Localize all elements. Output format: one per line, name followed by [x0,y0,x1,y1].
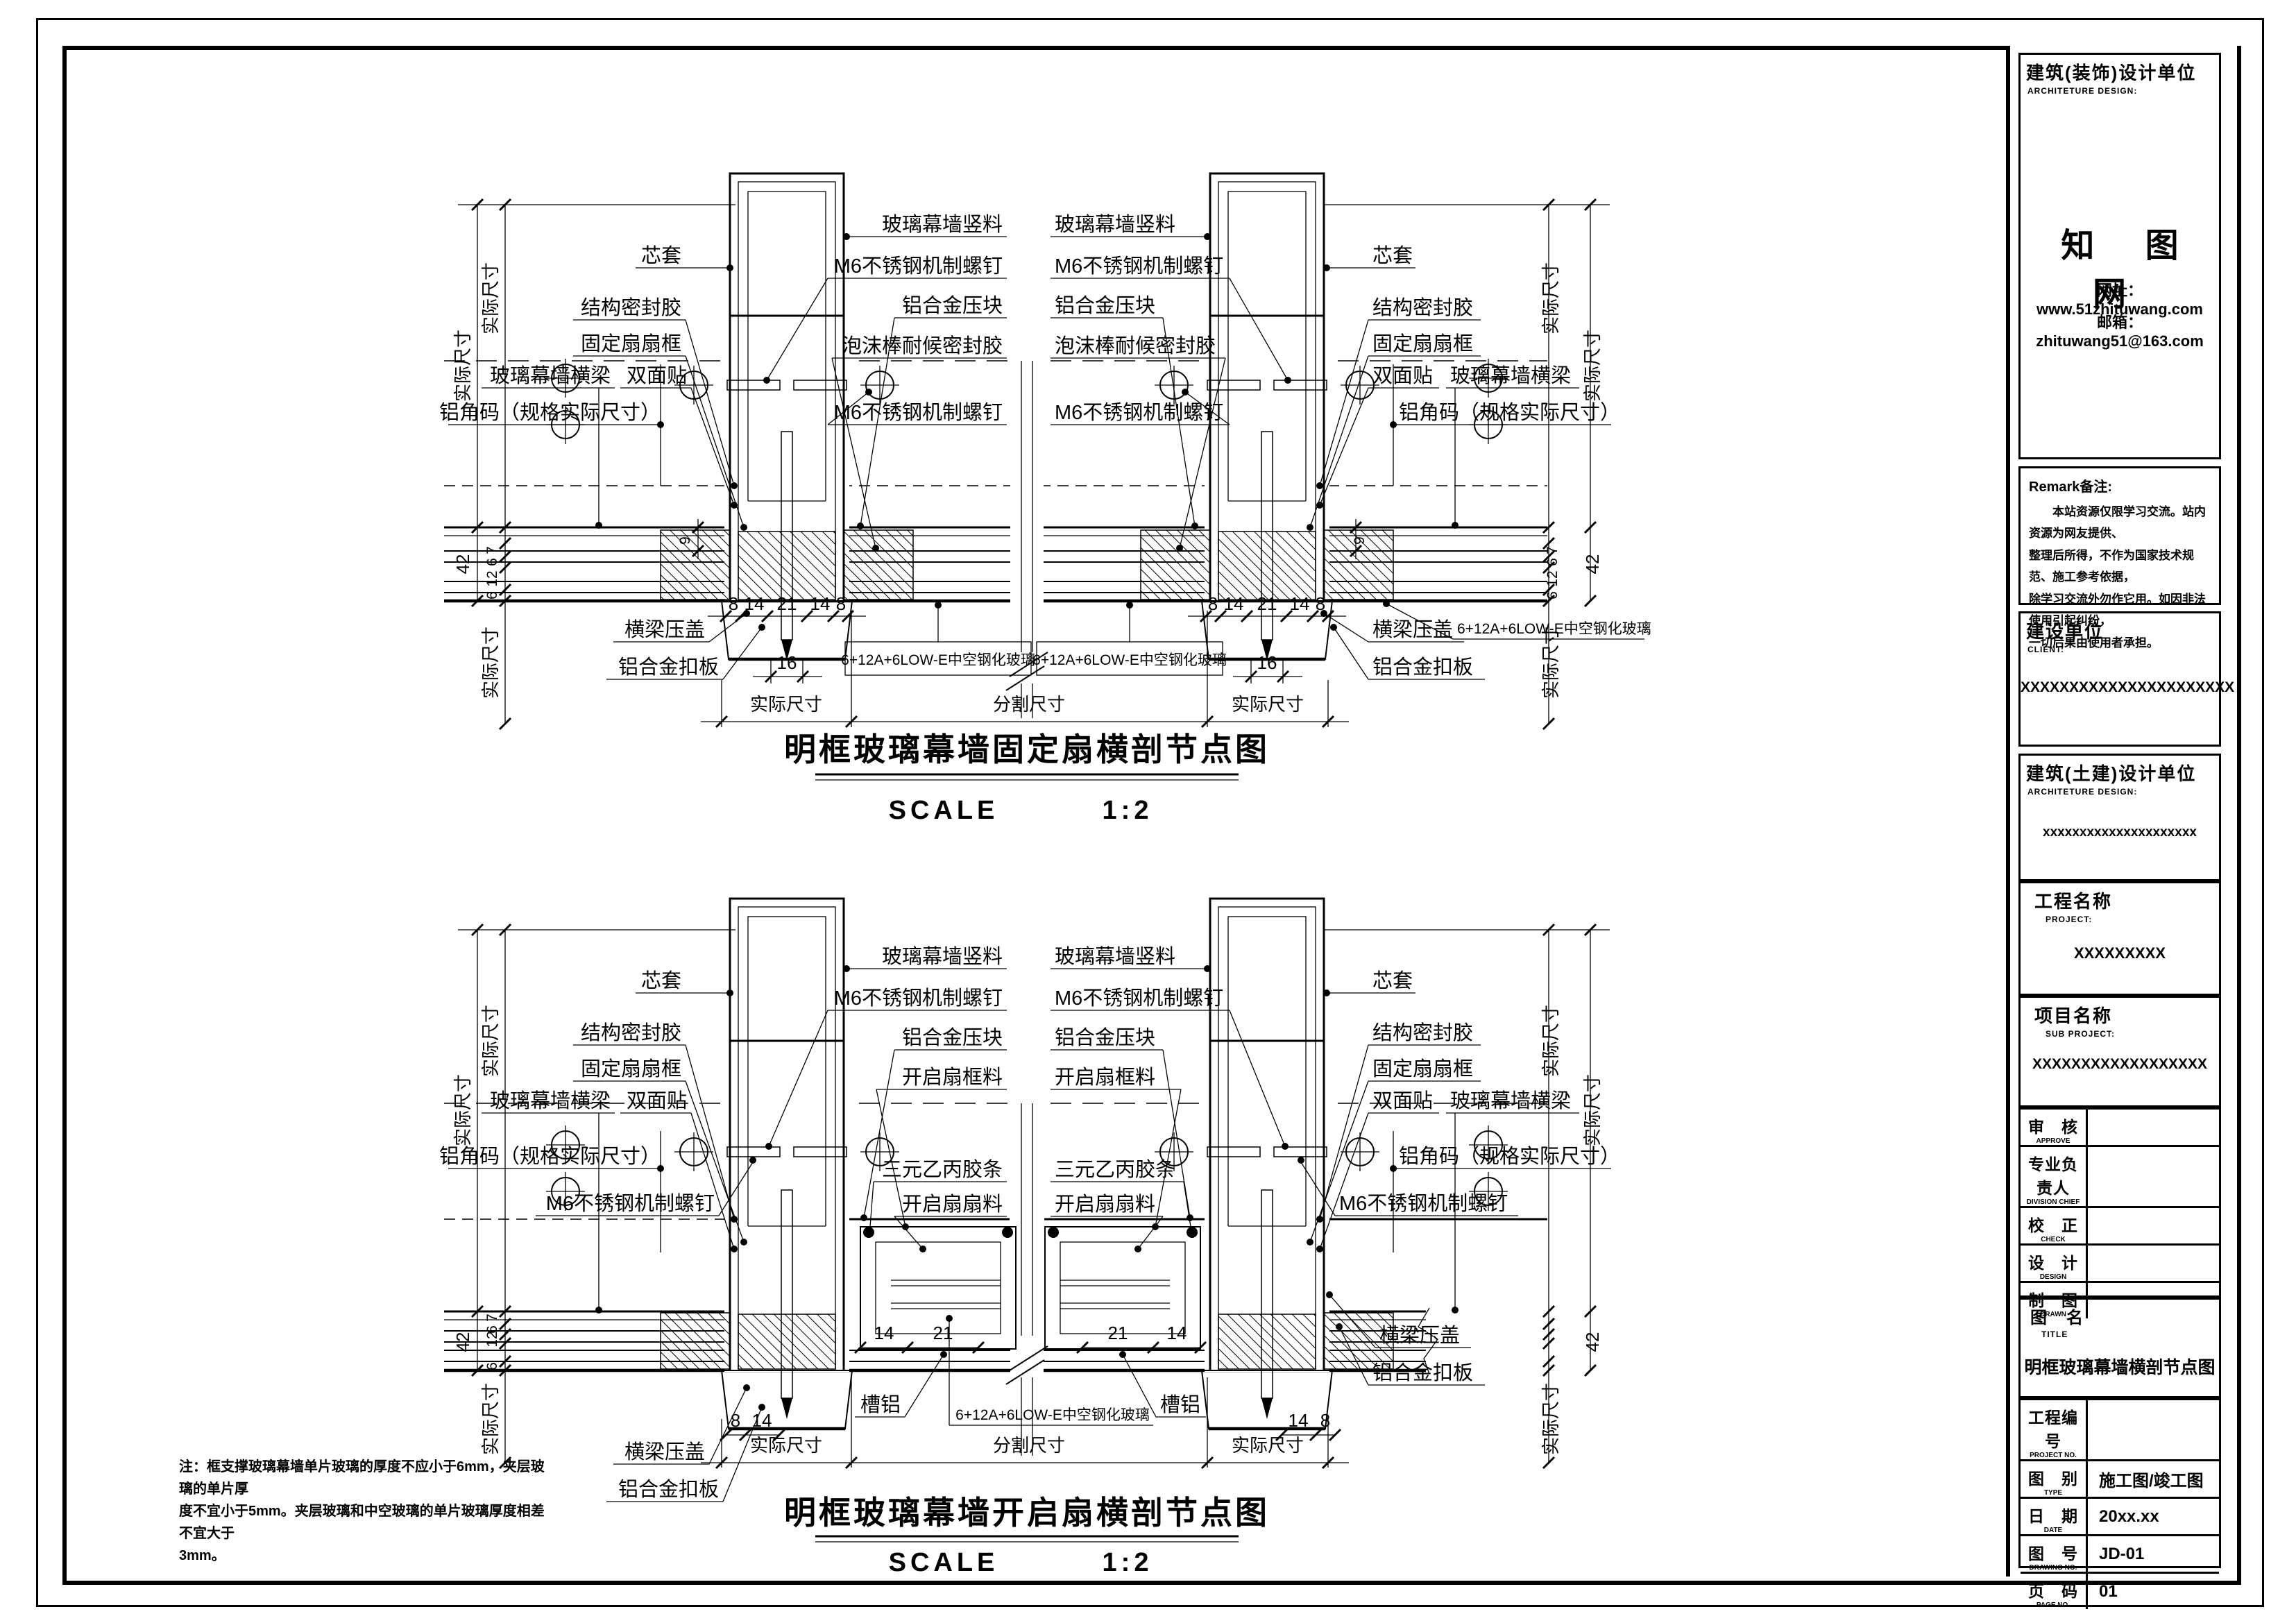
dim-actual-size: 实际尺寸 [452,1074,473,1146]
dim-12: 12 [484,570,500,586]
label-double-sided-tape: 双面贴 [1372,364,1433,387]
dim-8: 8 [731,1410,740,1431]
deco-design-label-en: ARCHITETURE DESIGN: [2021,85,2219,96]
email-label: 邮箱： [2097,314,2143,331]
label-m6-screw: M6不锈钢机制螺钉 [1055,987,1223,1010]
drawing2-scale-value: 1:2 [1103,1548,1153,1577]
drawing1-title-text: 明框玻璃幕墙固定扇横剖节点图 [784,731,1270,767]
dim-6: 6 [484,558,500,566]
label-m6-screw: M6不锈钢机制螺钉 [1339,1192,1508,1215]
dim-14: 14 [1290,593,1310,614]
dim-14: 14 [1167,1323,1187,1343]
dim-42: 42 [452,1332,473,1352]
label-glass-spec: 6+12A+6LOW-E中空钢化玻璃 [1457,621,1651,637]
drawing2-title-text: 明框玻璃幕墙开启扇横剖节点图 [784,1495,1270,1531]
dim-14: 14 [1224,593,1244,614]
remark-line: 本站资源仅限学习交流。站内资源为网友提供、 [2029,501,2213,545]
project-no-label-cn: 工程编号 [2021,1404,2086,1452]
dim-6: 6 [1545,558,1561,566]
design-label-cn: 设 计 [2021,1250,2086,1273]
drawing1-title: 明框玻璃幕墙固定扇横剖节点图 SCALE 1:2 [784,731,1270,825]
label-channel-aluminum: 槽铝 [1160,1393,1200,1416]
project-no-value [2088,1400,2219,1461]
dim-actual-size: 实际尺寸 [452,330,473,402]
label-curtainwall-beam: 玻璃幕墙横梁 [490,364,611,387]
dim-actual-size: 实际尺寸 [480,627,501,699]
drawing1-scale-value: 1:2 [1103,796,1153,825]
type-label-cn: 图 别 [2021,1465,2086,1489]
project-label-en: PROJECT: [2021,913,2219,924]
dim-actual-size: 实际尺寸 [1582,330,1603,402]
dim-division-size: 分割尺寸 [993,1435,1065,1456]
label-glass-spec: 6+12A+6LOW-E中空钢化玻璃 [841,652,1035,668]
title-label-en: TITLE [2021,1328,2219,1339]
check-label-cn: 校 正 [2021,1212,2086,1236]
date-label-en: DATE [2021,1527,2086,1534]
label-curtainwall-mullion: 玻璃幕墙竖料 [882,945,1003,968]
label-openable-sash-leaf: 开启扇扇料 [1055,1193,1155,1216]
dim-actual-size: 实际尺寸 [1540,627,1561,699]
label-aluminum-angle: 铝角码（规格实际尺寸） [439,1145,661,1168]
dim-21: 21 [777,593,797,614]
dim-42: 42 [1582,1332,1603,1352]
sub-project-label-cn: 项目名称 [2021,998,2219,1028]
dim-actual-size: 实际尺寸 [1540,1383,1561,1455]
label-curtainwall-beam: 玻璃幕墙横梁 [490,1089,611,1112]
label-foam-rod-sealant: 泡沫棒耐候密封胶 [842,334,1003,357]
label-double-sided-tape: 双面贴 [627,1089,687,1112]
client-value: XXXXXXXXXXXXXXXXXXXXXX [2021,679,2219,696]
label-core-sleeve: 芯套 [1372,969,1413,992]
label-structural-sealant: 结构密封胶 [581,1021,681,1044]
label-aluminum-buckle-plate: 铝合金扣板 [618,656,719,679]
civil-design-box: 建筑(土建)设计单位 ARCHITETURE DESIGN: xxxxxxxxx… [2018,754,2221,881]
drawing1-labels: 芯套 结构密封胶 固定扇扇框 玻璃幕墙横梁 双面贴 铝角码（规格实际尺寸） M6… [439,213,1651,679]
label-fixed-sash-frame: 固定扇扇框 [581,1057,681,1080]
note-line: 度不宜小于5mm。夹层玻璃和中空玻璃的单片玻璃厚度相差不宜大于 [179,1500,557,1545]
note-line: 3mm。 [179,1545,557,1567]
dim-actual-size: 实际尺寸 [750,1435,822,1456]
label-openable-sash-frame: 开启扇框料 [902,1066,1003,1089]
label-m6-screw: M6不锈钢机制螺钉 [834,401,1003,424]
label-m6-screw: M6不锈钢机制螺钉 [1055,255,1223,278]
drawing-no-label-en: DRAWING NO. [2021,1564,2086,1572]
dim-14: 14 [752,1410,772,1431]
label-glass-spec: 6+12A+6LOW-E中空钢化玻璃 [955,1407,1150,1423]
date-label-cn: 日 期 [2021,1503,2086,1527]
dim-6: 6 [1545,591,1561,600]
client-box: 建设单位 CLIENT: XXXXXXXXXXXXXXXXXXXXXX [2018,611,2221,747]
design-value [2088,1246,2219,1283]
website-label: 网址： [2097,282,2143,299]
approve-label-cn: 审 核 [2021,1114,2086,1137]
label-openable-sash-leaf: 开启扇扇料 [902,1193,1003,1216]
label-structural-sealant: 结构密封胶 [1372,296,1473,319]
label-openable-sash-frame: 开启扇框料 [1055,1066,1155,1089]
dim-8: 8 [1320,1410,1330,1431]
general-note: 注：框支撑玻璃幕墙单片玻璃的厚度不应小于6mm，夹层玻璃的单片厚 度不宜小于5m… [179,1456,557,1567]
email-value: zhituwang51@163.com [2036,332,2204,350]
label-aluminum-buckle-plate: 铝合金扣板 [1372,656,1473,679]
drawing-sheet: 实际尺寸 实际尺寸 42 7 6 12 6 实际尺寸 实际尺寸 实际尺寸 42 … [0,0,2296,1623]
label-beam-cover: 横梁压盖 [624,1441,705,1463]
label-curtainwall-mullion: 玻璃幕墙竖料 [1055,213,1175,236]
approve-label-en: APPROVE [2021,1137,2086,1145]
note-line: 注：框支撑玻璃幕墙单片玻璃的厚度不应小于6mm，夹层玻璃的单片厚 [179,1456,557,1500]
dim-12: 12 [1545,570,1561,586]
dim-actual-size: 实际尺寸 [480,262,501,334]
dim-12: 12 [484,1331,500,1347]
drawing2-scale-label: SCALE [889,1548,999,1577]
label-glass-spec: 6+12A+6LOW-E中空钢化玻璃 [1032,652,1227,668]
date-value: 20xx.xx [2088,1499,2219,1536]
dim-7: 7 [484,546,500,554]
label-aluminum-angle: 铝角码（规格实际尺寸） [1399,401,1620,424]
client-label-cn: 建设单位 [2021,613,2219,643]
label-aluminum-angle: 铝角码（规格实际尺寸） [1399,1145,1620,1168]
meta-table: 工程编号PROJECT NO. 图 别TYPE 施工图/竣工图 日 期DATE … [2018,1398,2221,1568]
label-beam-cover: 横梁压盖 [1372,618,1453,641]
drawing-title-box: 图 名 TITLE 明框玻璃幕墙横剖节点图 [2018,1298,2221,1398]
dim-8: 8 [729,593,738,614]
label-m6-screw: M6不锈钢机制螺钉 [834,255,1003,278]
client-label-en: CLIENT: [2021,643,2219,654]
label-aluminum-pressure-block: 铝合金压块 [1055,294,1155,317]
label-fixed-sash-frame: 固定扇扇框 [1372,332,1473,355]
dim-actual-size: 实际尺寸 [750,694,822,715]
label-aluminum-pressure-block: 铝合金压块 [902,294,1003,317]
sub-project-value: XXXXXXXXXXXXXXXXXX [2021,1056,2219,1073]
dim-16: 16 [777,652,797,673]
label-beam-cover: 横梁压盖 [624,618,705,641]
label-aluminum-angle: 铝角码（规格实际尺寸） [439,401,661,424]
dim-8: 8 [836,593,846,614]
check-label-en: CHECK [2021,1236,2086,1243]
civil-design-label-en: ARCHITETURE DESIGN: [2021,785,2219,797]
dim-6: 6 [484,1362,500,1370]
design-unit-box: 建筑(装饰)设计单位 ARCHITETURE DESIGN: 知 图 网 网址：… [2018,53,2221,459]
remark-title: Remark备注: [2021,468,2219,495]
dim-actual-size: 实际尺寸 [1540,1005,1561,1077]
dim-14: 14 [1289,1410,1309,1431]
sub-project-label-en: SUB PROJECT: [2021,1028,2219,1039]
label-epdm-gasket: 三元乙丙胶条 [1055,1158,1175,1181]
label-core-sleeve: 芯套 [641,969,681,992]
cad-drawing-canvas: 实际尺寸 实际尺寸 42 7 6 12 6 实际尺寸 实际尺寸 实际尺寸 42 … [0,0,2296,1623]
label-curtainwall-beam: 玻璃幕墙横梁 [1450,1089,1571,1112]
label-fixed-sash-frame: 固定扇扇框 [1372,1057,1473,1080]
label-aluminum-buckle-plate: 铝合金扣板 [618,1478,719,1501]
label-m6-screw: M6不锈钢机制螺钉 [546,1192,715,1215]
drawing1-scale-label: SCALE [889,796,999,825]
dim-actual-size: 实际尺寸 [480,1005,501,1077]
civil-design-label-cn: 建筑(土建)设计单位 [2021,756,2219,785]
dim-14: 14 [874,1323,894,1343]
civil-design-value: xxxxxxxxxxxxxxxxxxxxx [2021,825,2219,840]
approval-table: 审 核APPROVE 专业负责人DIVISION CHIEF 校 正CHECK … [2018,1107,2221,1298]
dim-42: 42 [1582,554,1603,575]
dim-9: 9 [1352,536,1368,545]
page-no-value: 01 [2088,1574,2219,1609]
page-no-label-cn: 页 码 [2021,1578,2086,1601]
label-channel-aluminum: 槽铝 [860,1393,901,1416]
dim-21: 21 [1108,1323,1128,1343]
label-m6-screw: M6不锈钢机制螺钉 [1055,401,1223,424]
label-foam-rod-sealant: 泡沫棒耐候密封胶 [1055,334,1216,357]
page-no-label-en: PAGE NO. [2021,1601,2086,1609]
label-core-sleeve: 芯套 [1372,244,1413,267]
dim-9: 9 [677,536,693,545]
drawing-no-label-cn: 图 号 [2021,1540,2086,1564]
label-curtainwall-beam: 玻璃幕墙横梁 [1450,364,1571,387]
label-structural-sealant: 结构密封胶 [581,296,681,319]
label-aluminum-pressure-block: 铝合金压块 [1055,1026,1155,1049]
dim-7: 7 [1545,546,1561,554]
type-label-en: TYPE [2021,1489,2086,1497]
type-value: 施工图/竣工图 [2088,1461,2219,1499]
label-core-sleeve: 芯套 [641,244,681,267]
deco-design-label-cn: 建筑(装饰)设计单位 [2021,55,2219,85]
sub-project-box: 项目名称 SUB PROJECT: XXXXXXXXXXXXXXXXXX [2018,996,2221,1107]
design-label-en: DESIGN [2021,1273,2086,1281]
label-structural-sealant: 结构密封胶 [1372,1021,1473,1044]
label-double-sided-tape: 双面贴 [1372,1089,1433,1112]
division-chief-value [2088,1147,2219,1208]
dim-actual-size: 实际尺寸 [480,1383,501,1455]
dim-division-size: 分割尺寸 [993,694,1065,715]
label-beam-cover: 横梁压盖 [1379,1324,1460,1347]
label-fixed-sash-frame: 固定扇扇框 [581,332,681,355]
dim-actual-size: 实际尺寸 [1232,1435,1304,1456]
remark-box: Remark备注: 本站资源仅限学习交流。站内资源为网友提供、 整理后所得，不作… [2018,466,2221,605]
title-label-cn: 图 名 [2021,1300,2219,1328]
drawing-no-value: JD-01 [2088,1536,2219,1574]
division-chief-label-en: DIVISION CHIEF [2021,1198,2086,1206]
division-chief-label-cn: 专业负责人 [2021,1151,2086,1198]
label-curtainwall-mullion: 玻璃幕墙竖料 [882,213,1003,236]
project-label-cn: 工程名称 [2021,883,2219,913]
dim-actual-size: 实际尺寸 [1540,262,1561,334]
project-value: XXXXXXXXX [2021,944,2219,962]
dim-6: 6 [484,591,500,600]
label-epdm-gasket: 三元乙丙胶条 [882,1158,1003,1181]
label-m6-screw: M6不锈钢机制螺钉 [834,987,1003,1010]
drawing-title-value: 明框玻璃幕墙横剖节点图 [2021,1354,2219,1379]
dim-8: 8 [1208,593,1218,614]
label-double-sided-tape: 双面贴 [627,364,687,387]
label-aluminum-buckle-plate: 铝合金扣板 [1372,1361,1473,1384]
remark-line: 整理后所得，不作为国家技术规范、施工参考依据， [2029,545,2213,588]
check-value [2088,1208,2219,1246]
dim-7: 7 [484,1314,500,1322]
project-name-box: 工程名称 PROJECT: XXXXXXXXX [2018,881,2221,996]
dim-14: 14 [810,593,831,614]
dim-42: 42 [452,554,473,575]
dim-actual-size: 实际尺寸 [1232,694,1304,715]
label-aluminum-pressure-block: 铝合金压块 [902,1026,1003,1049]
label-curtainwall-mullion: 玻璃幕墙竖料 [1055,945,1175,968]
approve-value [2088,1110,2219,1147]
dim-21: 21 [933,1323,953,1343]
project-no-label-en: PROJECT NO. [2021,1452,2086,1459]
dim-actual-size: 实际尺寸 [1582,1074,1603,1146]
dim-21: 21 [1257,593,1277,614]
dim-16: 16 [1257,652,1277,673]
title-block: 建筑(装饰)设计单位 ARCHITETURE DESIGN: 知 图 网 网址：… [2006,46,2237,1577]
drawing2-title: 明框玻璃幕墙开启扇横剖节点图 SCALE 1:2 [784,1495,1270,1577]
